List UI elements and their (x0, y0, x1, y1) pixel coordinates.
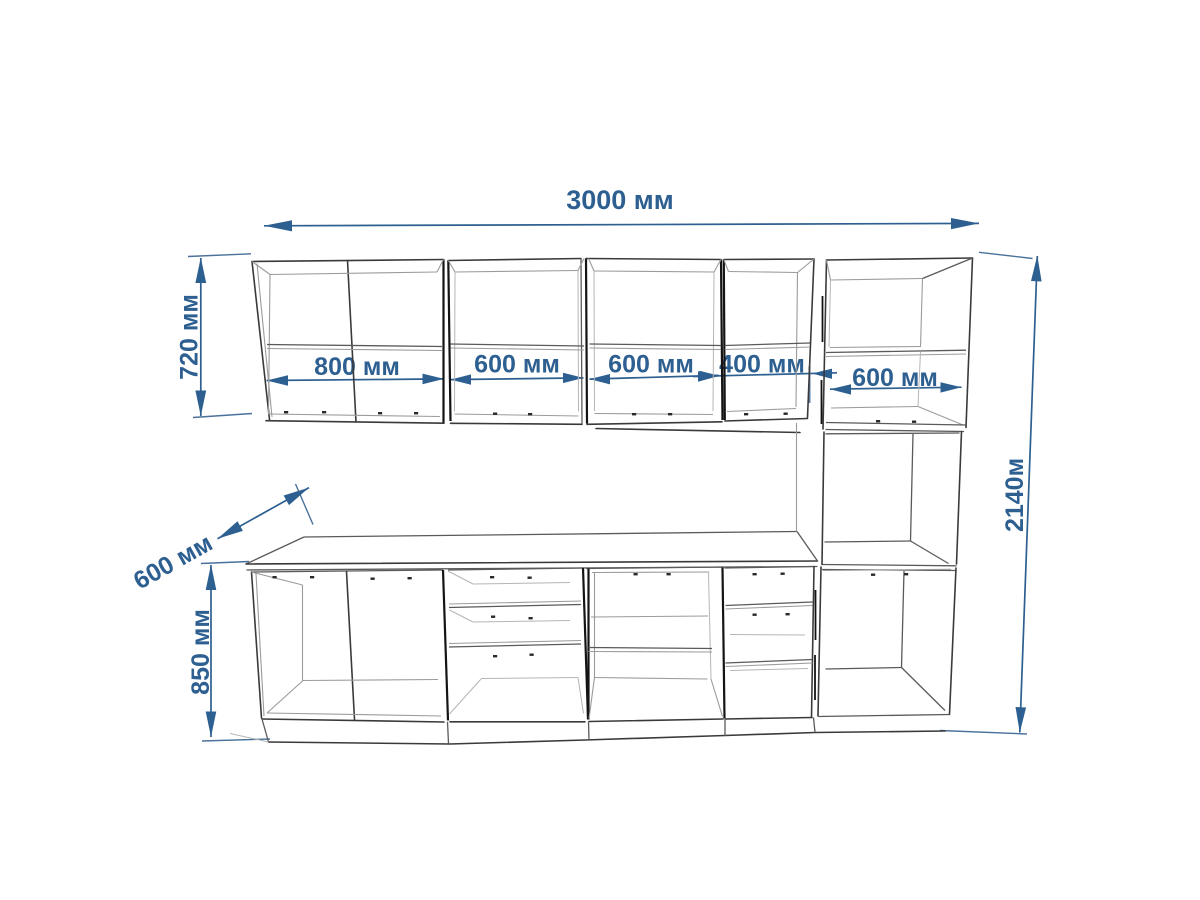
svg-text:720 мм: 720 мм (176, 294, 204, 380)
svg-text:600 мм: 600 мм (852, 364, 938, 392)
svg-text:2140м: 2140м (1001, 458, 1029, 532)
svg-text:850 мм: 850 мм (187, 609, 215, 695)
svg-text:600 мм: 600 мм (474, 351, 560, 379)
svg-text:3000 мм: 3000 мм (566, 185, 674, 215)
svg-text:600 мм: 600 мм (608, 351, 694, 379)
svg-text:800 мм: 800 мм (314, 353, 400, 381)
svg-text:400 мм: 400 мм (719, 351, 805, 379)
